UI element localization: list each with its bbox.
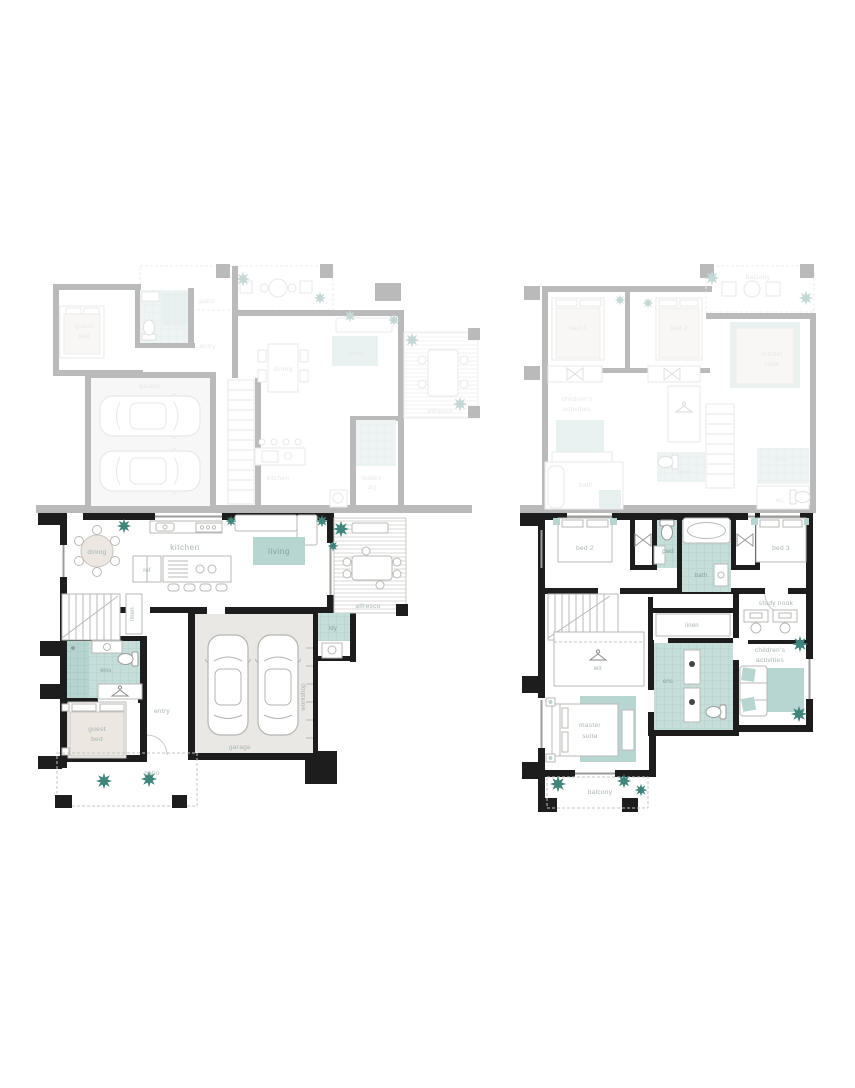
robe-icon bbox=[635, 534, 651, 546]
linen-area: linen bbox=[656, 614, 730, 636]
stairs bbox=[62, 594, 120, 640]
room-label-ens: ens bbox=[100, 667, 112, 674]
childrens-rug bbox=[766, 668, 804, 712]
ghost-bed2: bed 2 bbox=[656, 298, 702, 360]
robe-icon bbox=[737, 534, 753, 546]
room-label-study-nook: study nook bbox=[759, 600, 794, 607]
master-ensuite-area: ens bbox=[654, 643, 733, 730]
laundry-area: ldy bbox=[318, 613, 350, 658]
ghost-room-label-dining: dining bbox=[273, 366, 292, 373]
ghost-room-label-master2: suite bbox=[764, 361, 779, 368]
room-label-bath: bath bbox=[695, 573, 707, 579]
ghost-bed3: bed 3 bbox=[552, 298, 604, 360]
room-label-balcony: balcony bbox=[588, 789, 613, 796]
toilet-icon bbox=[660, 520, 674, 540]
car-icon bbox=[255, 635, 301, 735]
ghost-room-label-balcony: balcony bbox=[746, 274, 771, 281]
ghost-room-label-wc: wc bbox=[775, 497, 785, 504]
car-icon bbox=[205, 635, 251, 735]
shower bbox=[67, 641, 89, 698]
room-label-patio: patio bbox=[144, 770, 160, 777]
ghost-butlers bbox=[356, 420, 396, 466]
ghost-room-label-bath: bath bbox=[579, 482, 593, 489]
ground-floor-ghost-plan: patio guest bed entry garage d bbox=[36, 264, 480, 513]
ghost-room-label-guest: guest bbox=[75, 323, 92, 330]
room-label-garage: garage bbox=[229, 744, 251, 751]
room-label-kitchen: kitchen bbox=[170, 543, 200, 552]
childrens-activities-area: children's activities bbox=[740, 633, 811, 726]
room-label-wir: wir bbox=[593, 666, 602, 672]
floorplan-sheet: patio guest bed entry garage d bbox=[0, 0, 855, 1088]
alfresco-area: alfresco bbox=[325, 518, 408, 616]
first-floor-plan: bed 2 pwd bath bed 3 bbox=[520, 513, 813, 812]
entry-door-arc bbox=[147, 735, 167, 755]
room-label-living: living bbox=[268, 547, 290, 556]
room-label-workshop: workshop bbox=[301, 683, 307, 712]
room-label-linen: linen bbox=[130, 607, 136, 621]
kitchen-area: kitchen ref bbox=[133, 521, 231, 591]
plant-icon bbox=[311, 289, 329, 307]
room-label-pwd: pwd bbox=[662, 549, 674, 555]
ghost-room-label-childrens2: activities bbox=[563, 406, 591, 413]
bathtub-icon bbox=[688, 523, 726, 539]
dining-table: dining bbox=[75, 526, 120, 577]
room-label-linen: linen bbox=[685, 623, 699, 629]
ghost-room-label-master: master bbox=[761, 351, 783, 358]
ghost-room-label-entry: entry bbox=[200, 343, 216, 350]
bed2-area: bed 2 bbox=[553, 518, 617, 562]
toilet-icon bbox=[118, 652, 138, 666]
room-label-master: master bbox=[579, 722, 601, 729]
ghost-room-label-living: living bbox=[348, 350, 365, 357]
ghost-room-label-pwd: pwd bbox=[678, 469, 691, 476]
bathroom: bath bbox=[682, 518, 731, 592]
room-label-guest: guest bbox=[88, 726, 105, 733]
room-label-bed2: bed 2 bbox=[576, 545, 594, 552]
ghost-room-label-alfresco: alfresco bbox=[427, 408, 452, 415]
ghost-room-label-guest2: bed bbox=[78, 333, 90, 340]
powder-room: pwd bbox=[654, 520, 677, 568]
toilet-icon bbox=[706, 705, 726, 719]
room-label-entry: entry bbox=[154, 708, 170, 715]
ground-floor-plan: dining kitchen ref living bbox=[38, 512, 408, 808]
ghost-room-label-bed3: bed 3 bbox=[569, 325, 587, 332]
living-area: living bbox=[223, 512, 331, 565]
ghost-room-label-kitchen: kitchen bbox=[267, 475, 290, 482]
room-label-dining: dining bbox=[87, 549, 106, 556]
study-nook-area: study nook bbox=[744, 600, 797, 633]
ghost-room-label-childrens: children's bbox=[562, 396, 593, 403]
room-label-master2: suite bbox=[582, 733, 597, 740]
room-label-childrens: children's bbox=[755, 647, 786, 654]
guest-bed-area: guest bed bbox=[62, 702, 126, 758]
room-label-master-ens: ens bbox=[663, 679, 673, 685]
plant-icon bbox=[93, 770, 116, 793]
room-label-bed3: bed 3 bbox=[772, 545, 790, 552]
room-label-ldy: ldy bbox=[329, 626, 337, 632]
room-label-alfresco: alfresco bbox=[355, 603, 380, 610]
floorplan-drawing: patio guest bed entry garage d bbox=[0, 0, 855, 1088]
bed-bench bbox=[622, 710, 634, 750]
ghost-room-label-garage: garage bbox=[139, 383, 161, 390]
ghost-master: master suite bbox=[730, 322, 800, 388]
first-floor-ghost-plan: balcony bed 3 bed 2 master suite childre… bbox=[520, 264, 816, 513]
ghost-room-label-bed2: bed 2 bbox=[670, 325, 688, 332]
wir-area: wir bbox=[554, 632, 644, 686]
ghost-room-label-patio: patio bbox=[199, 298, 215, 305]
room-label-childrens2: activities bbox=[756, 657, 784, 664]
bed3-area: bed 3 bbox=[751, 518, 809, 562]
ghost-room-label-butlers: butlers bbox=[362, 476, 381, 482]
master-suite-area: master suite bbox=[546, 696, 636, 762]
ghost-room-label-butlers2: dry bbox=[368, 485, 377, 491]
ghost-room-label-ens: ens bbox=[775, 456, 787, 463]
fridge-label: ref bbox=[143, 568, 151, 574]
room-label-guest2: bed bbox=[91, 736, 103, 743]
plant-icon bbox=[632, 781, 650, 799]
garage-area: garage workshop bbox=[195, 614, 313, 753]
